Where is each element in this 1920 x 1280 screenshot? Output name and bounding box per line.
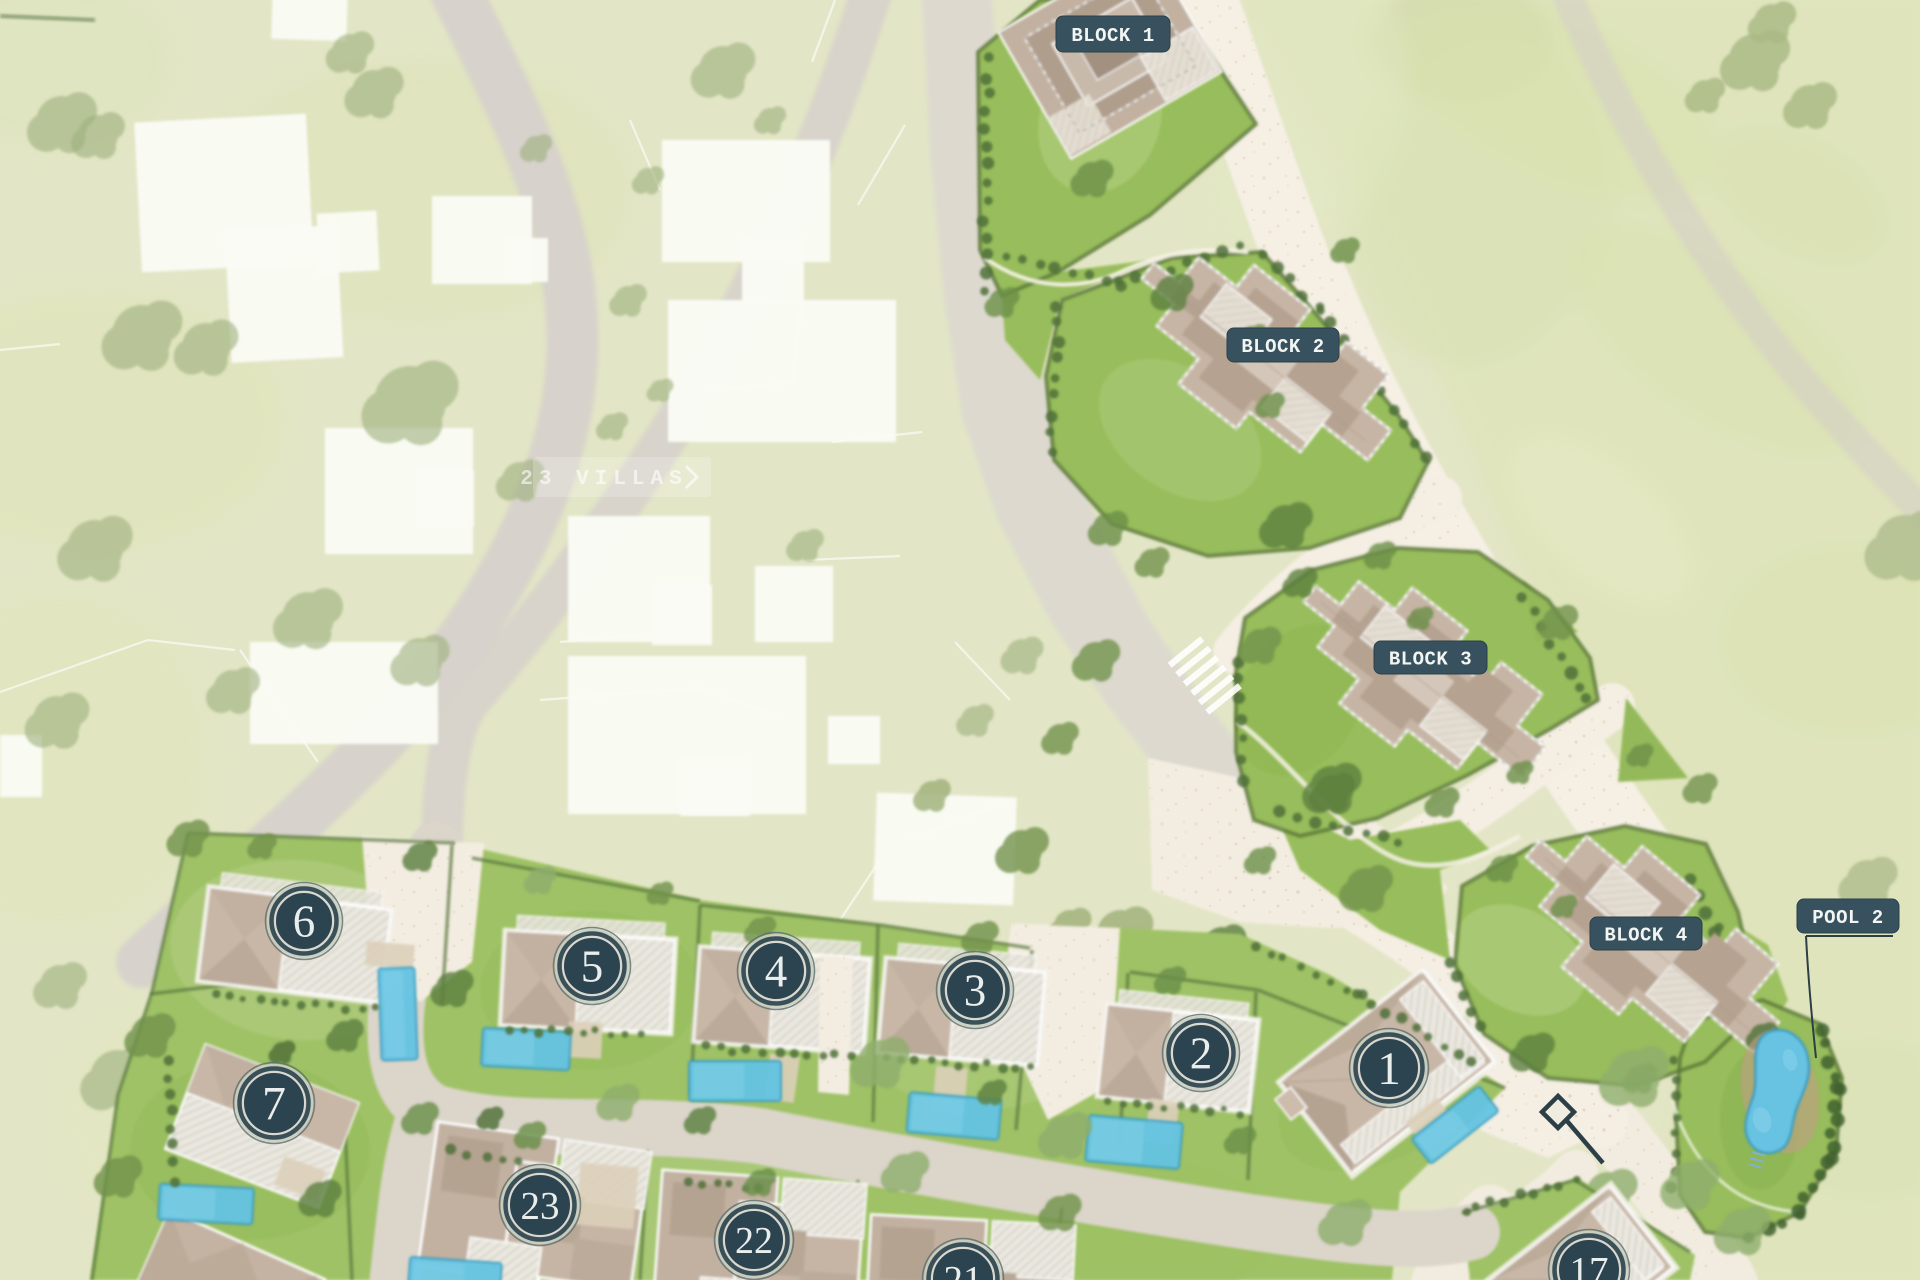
svg-text:2: 2	[1190, 1028, 1213, 1078]
svg-text:7: 7	[262, 1077, 286, 1130]
svg-text:5: 5	[581, 941, 604, 991]
svg-text:BLOCK 2: BLOCK 2	[1241, 336, 1324, 358]
svg-text:17: 17	[1570, 1249, 1609, 1280]
svg-text:21: 21	[944, 1258, 983, 1280]
svg-text:BLOCK 3: BLOCK 3	[1389, 648, 1472, 670]
svg-text:23 VILLAS: 23 VILLAS	[520, 468, 687, 491]
svg-text:BLOCK 1: BLOCK 1	[1071, 25, 1154, 47]
svg-text:22: 22	[735, 1220, 773, 1262]
svg-text:6: 6	[293, 896, 316, 946]
svg-text:1: 1	[1377, 1043, 1401, 1095]
svg-text:POOL 2: POOL 2	[1812, 907, 1883, 929]
svg-text:BLOCK 4: BLOCK 4	[1604, 924, 1687, 946]
svg-text:3: 3	[964, 965, 987, 1015]
svg-text:23: 23	[521, 1184, 560, 1227]
svg-text:4: 4	[765, 946, 788, 996]
